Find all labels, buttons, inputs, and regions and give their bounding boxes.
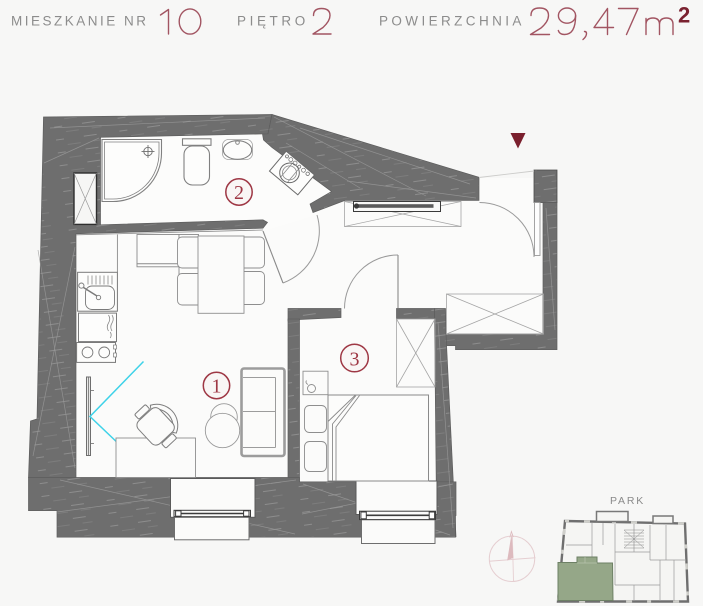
- svg-text:PIĘTRO: PIĘTRO: [237, 14, 309, 29]
- svg-text:2: 2: [234, 182, 244, 204]
- svg-text:2: 2: [678, 3, 690, 28]
- svg-text:POWIERZCHNIA: POWIERZCHNIA: [379, 14, 525, 29]
- svg-text:1: 1: [212, 376, 222, 398]
- svg-text:PARK: PARK: [610, 495, 645, 507]
- svg-text:MIESZKANIE NR: MIESZKANIE NR: [11, 14, 149, 29]
- svg-text:3: 3: [350, 349, 360, 371]
